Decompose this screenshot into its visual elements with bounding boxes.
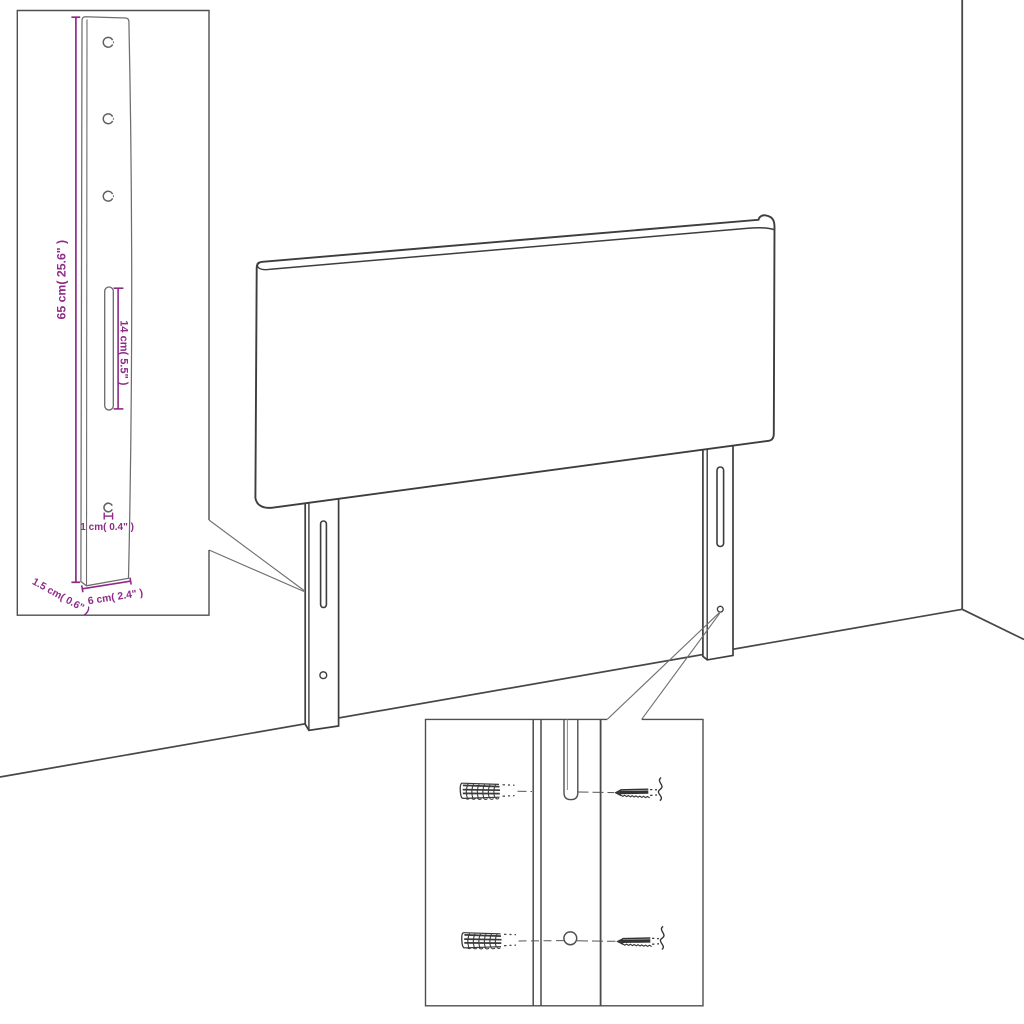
svg-text:65 cm( 25.6" ): 65 cm( 25.6" ) bbox=[55, 240, 69, 320]
svg-text:14 cm( 5.5" ): 14 cm( 5.5" ) bbox=[117, 320, 129, 385]
svg-text:1 cm( 0.4" ): 1 cm( 0.4" ) bbox=[80, 522, 134, 533]
svg-text:6 cm( 2.4" ): 6 cm( 2.4" ) bbox=[87, 588, 144, 608]
